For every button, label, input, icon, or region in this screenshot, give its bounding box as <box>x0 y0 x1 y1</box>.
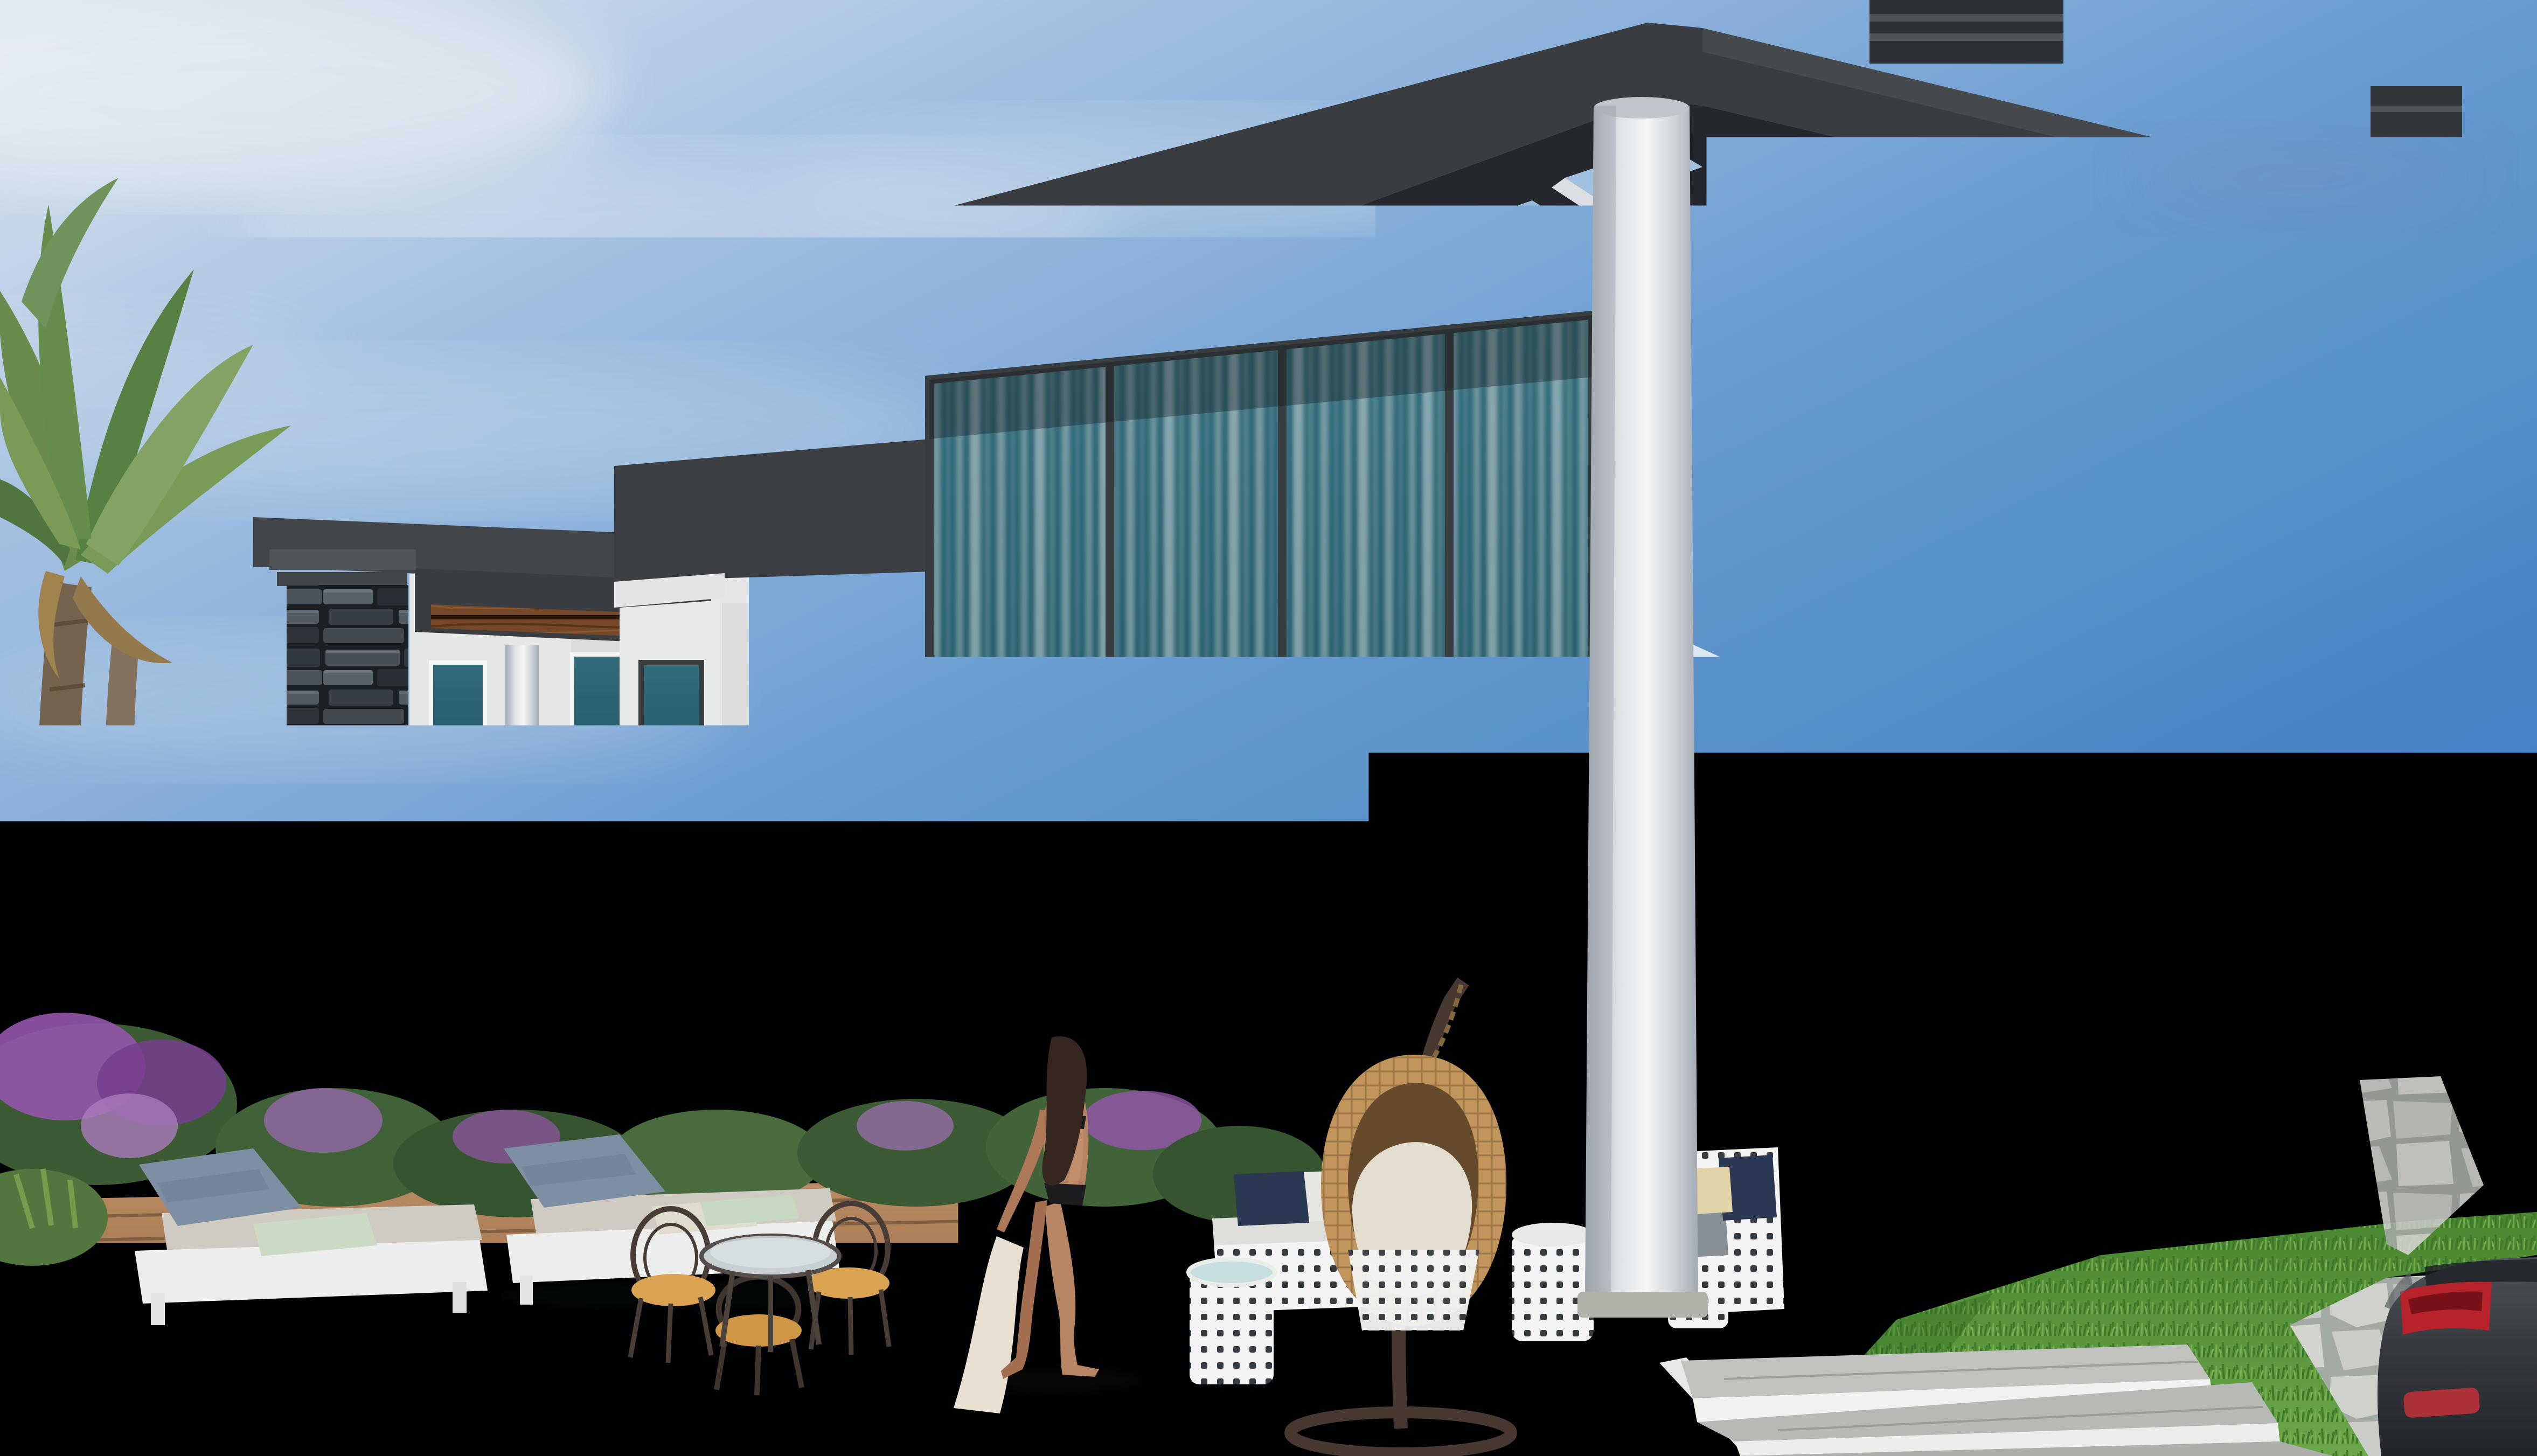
villa-render-image <box>0 0 2537 1456</box>
render-canvas <box>0 0 2537 1456</box>
vignette <box>0 0 2537 1456</box>
